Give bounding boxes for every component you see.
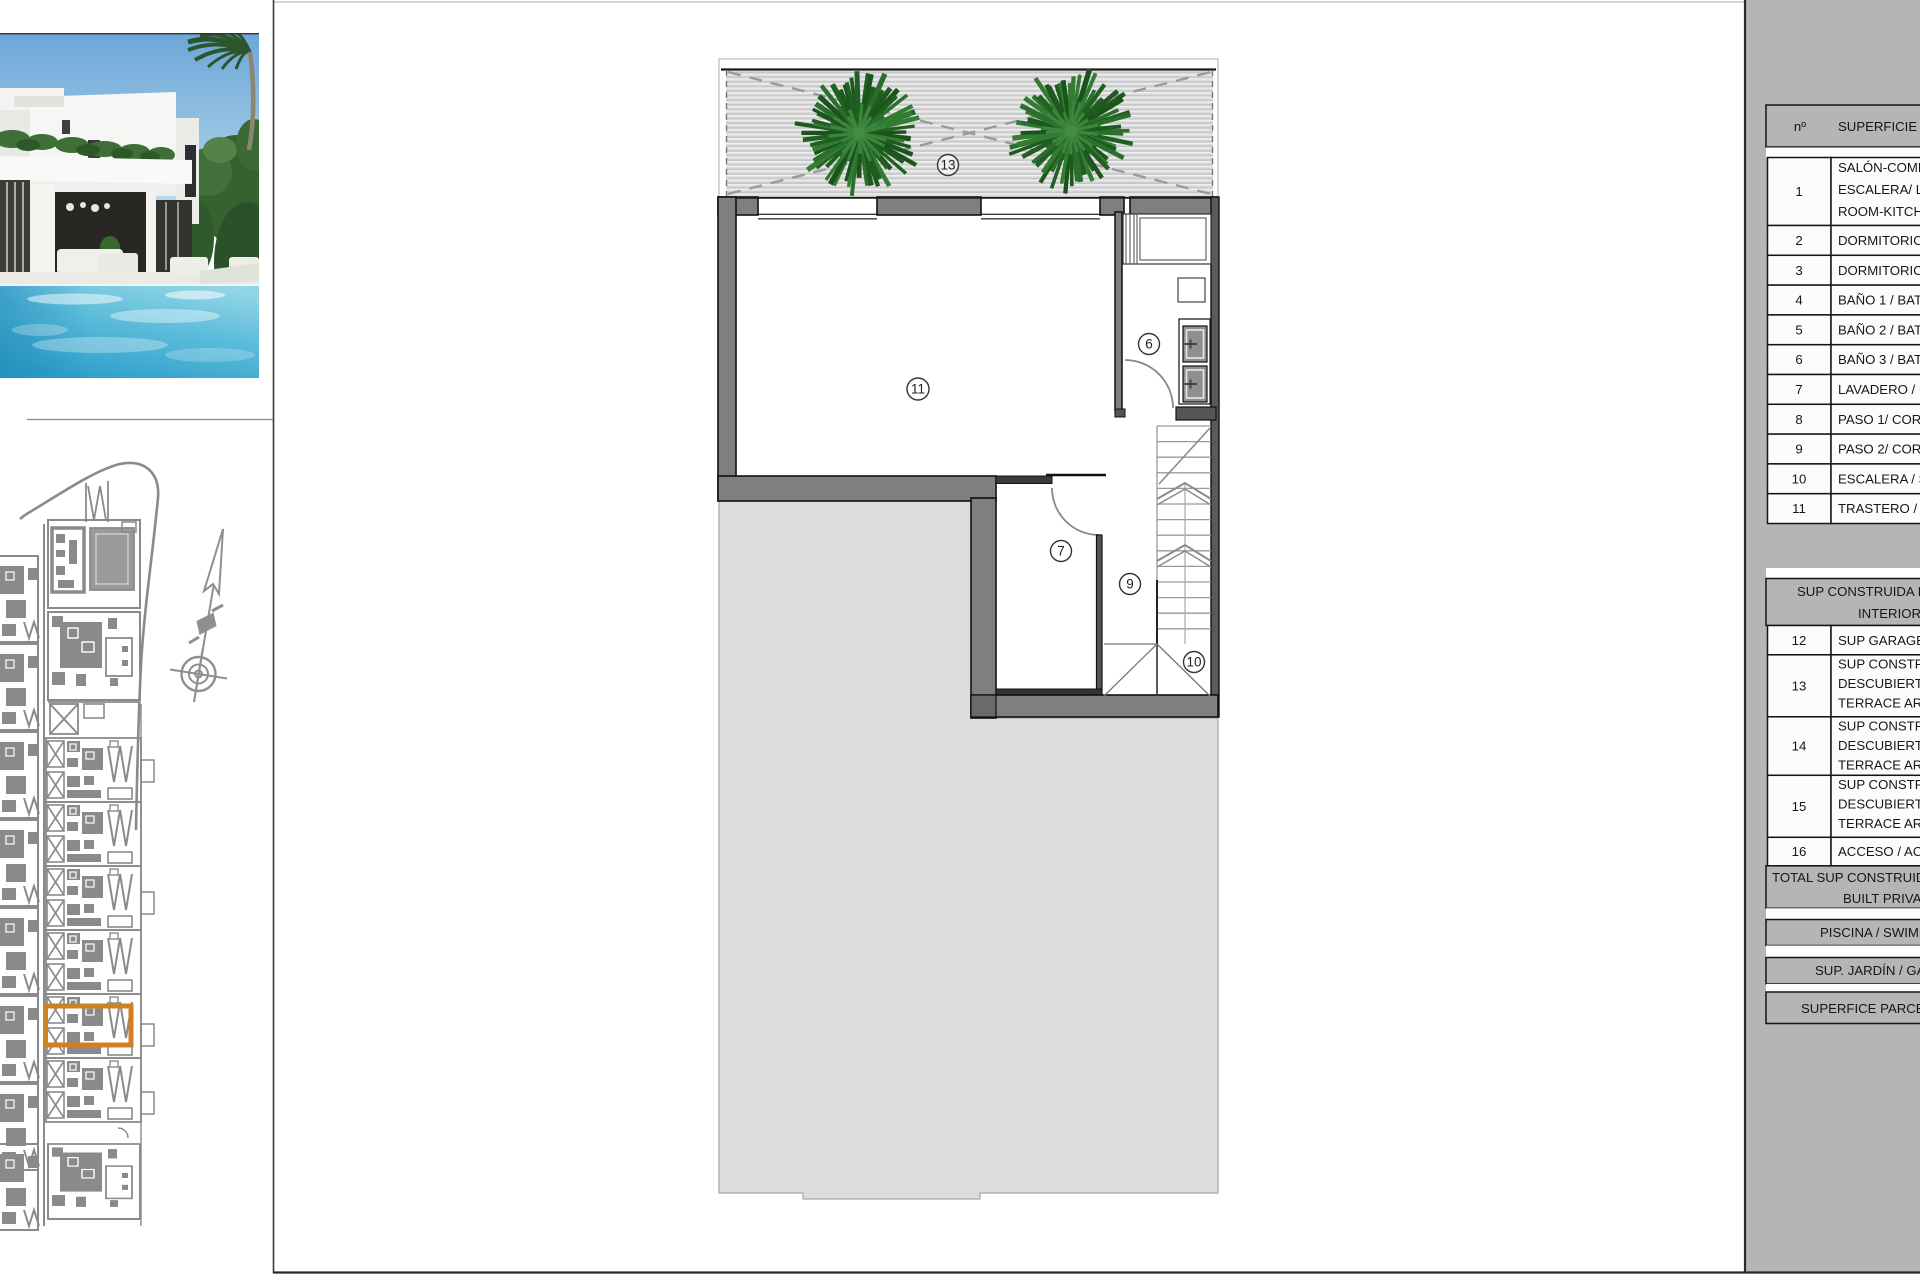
svg-text:BUILT PRIVATE AREA: BUILT PRIVATE AREA bbox=[1843, 891, 1920, 906]
svg-text:ACCESO / ACCESS: ACCESO / ACCESS bbox=[1838, 844, 1920, 859]
svg-text:SUP CONSTRUIDA TERRAZA: SUP CONSTRUIDA TERRAZA bbox=[1838, 777, 1920, 792]
svg-text:14: 14 bbox=[1792, 739, 1807, 754]
svg-text:SUP CONSTRUIDA TERRAZA: SUP CONSTRUIDA TERRAZA bbox=[1838, 656, 1920, 671]
svg-text:13: 13 bbox=[940, 158, 955, 173]
svg-text:SUP. JARDÍN / GARDEN AREA: SUP. JARDÍN / GARDEN AREA bbox=[1815, 963, 1920, 978]
svg-text:ESCALERA/ LIVING-DINING: ESCALERA/ LIVING-DINING bbox=[1838, 182, 1920, 197]
svg-text:DORMITORIO 1/ BEDROOM 1: DORMITORIO 1/ BEDROOM 1 bbox=[1838, 233, 1920, 248]
svg-text:PASO 2/ CORRIDOR 2: PASO 2/ CORRIDOR 2 bbox=[1838, 442, 1920, 457]
svg-text:13: 13 bbox=[1792, 678, 1807, 693]
svg-text:TERRACE AREA P.BAJA: TERRACE AREA P.BAJA bbox=[1838, 695, 1920, 710]
svg-text:2: 2 bbox=[1795, 233, 1802, 248]
svg-text:11: 11 bbox=[1792, 501, 1806, 516]
svg-text:SUP GARAGE/ GARAGE AREA: SUP GARAGE/ GARAGE AREA bbox=[1838, 633, 1920, 648]
svg-text:TOTAL SUP CONSTRUIDA PRIVADA/: TOTAL SUP CONSTRUIDA PRIVADA/ TOTAL bbox=[1772, 870, 1920, 885]
svg-text:nº: nº bbox=[1794, 119, 1806, 134]
svg-text:16: 16 bbox=[1792, 844, 1807, 859]
svg-text:SUPERFICIE ÚTIL / USEFUL AREA: SUPERFICIE ÚTIL / USEFUL AREA bbox=[1838, 119, 1920, 134]
svg-text:DORMITORIO 2/ BEDROOM 2: DORMITORIO 2/ BEDROOM 2 bbox=[1838, 263, 1920, 278]
svg-text:6: 6 bbox=[1795, 352, 1802, 367]
svg-text:9: 9 bbox=[1795, 442, 1802, 457]
svg-text:BAÑO 3 / BATHROOM 3: BAÑO 3 / BATHROOM 3 bbox=[1838, 352, 1920, 367]
svg-text:8: 8 bbox=[1795, 412, 1802, 427]
svg-text:11: 11 bbox=[911, 382, 925, 397]
svg-text:9: 9 bbox=[1126, 577, 1134, 592]
svg-text:4: 4 bbox=[1795, 293, 1802, 308]
svg-text:12: 12 bbox=[1792, 633, 1807, 648]
svg-text:TRASTERO / STORAGE: TRASTERO / STORAGE bbox=[1838, 501, 1920, 516]
svg-text:SUPERFICE PARCELA / PLOT AREA: SUPERFICE PARCELA / PLOT AREA bbox=[1801, 1001, 1920, 1016]
svg-text:INTERIOR BUILT AREA: INTERIOR BUILT AREA bbox=[1858, 606, 1920, 621]
svg-text:5: 5 bbox=[1795, 322, 1802, 337]
svg-text:TERRACE AREA SOLARIUM: TERRACE AREA SOLARIUM bbox=[1838, 816, 1920, 831]
svg-text:7: 7 bbox=[1795, 382, 1802, 397]
svg-text:1: 1 bbox=[1795, 184, 1802, 199]
svg-text:PASO 1/ CORRIDOR 1: PASO 1/ CORRIDOR 1 bbox=[1838, 412, 1920, 427]
svg-text:LAVADERO / LAUNDRY: LAVADERO / LAUNDRY bbox=[1838, 382, 1920, 397]
svg-text:ESCALERA / STAIRS: ESCALERA / STAIRS bbox=[1838, 471, 1920, 486]
svg-text:PISCINA / SWIMMING POOL: PISCINA / SWIMMING POOL bbox=[1820, 925, 1920, 940]
svg-text:DESCUBIERTA/ UNCOVERED: DESCUBIERTA/ UNCOVERED bbox=[1838, 796, 1920, 811]
svg-text:10: 10 bbox=[1792, 471, 1807, 486]
svg-text:6: 6 bbox=[1145, 337, 1153, 352]
svg-text:BAÑO 2 / BATHROOM 2: BAÑO 2 / BATHROOM 2 bbox=[1838, 322, 1920, 337]
svg-text:TERRACE AREA P.1ª: TERRACE AREA P.1ª bbox=[1838, 757, 1920, 772]
svg-text:DESCUBIERTA/ UNCOVERED: DESCUBIERTA/ UNCOVERED bbox=[1838, 676, 1920, 691]
svg-text:SUP CONSTRUIDA TERRAZA: SUP CONSTRUIDA TERRAZA bbox=[1838, 718, 1920, 733]
svg-text:15: 15 bbox=[1792, 799, 1807, 814]
svg-text:3: 3 bbox=[1795, 263, 1802, 278]
svg-text:ROOM-KITCHEN-STAIRS: ROOM-KITCHEN-STAIRS bbox=[1838, 204, 1920, 219]
svg-text:BAÑO 1 / BATHROOM 1: BAÑO 1 / BATHROOM 1 bbox=[1838, 293, 1920, 308]
svg-text:SALÓN-COMEDOR-: SALÓN-COMEDOR- bbox=[1838, 160, 1920, 175]
svg-text:10: 10 bbox=[1186, 655, 1201, 670]
svg-text:7: 7 bbox=[1057, 544, 1065, 559]
svg-text:SUP CONSTRUIDA INTERIOR /: SUP CONSTRUIDA INTERIOR / bbox=[1797, 584, 1920, 599]
svg-text:DESCUBIERTA/ UNCOVERED: DESCUBIERTA/ UNCOVERED bbox=[1838, 738, 1920, 753]
